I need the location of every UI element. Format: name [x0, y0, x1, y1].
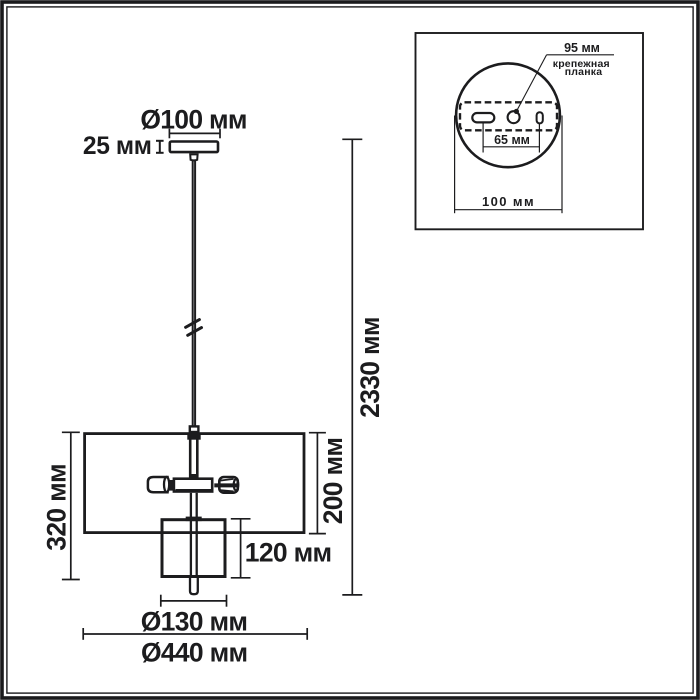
svg-text:2330 мм: 2330 мм: [355, 317, 385, 418]
svg-text:Ø130 мм: Ø130 мм: [141, 607, 248, 637]
svg-text:200 мм: 200 мм: [318, 438, 348, 525]
svg-text:25 мм: 25 мм: [83, 133, 152, 160]
svg-text:планка: планка: [565, 66, 603, 78]
svg-text:95 мм: 95 мм: [564, 41, 600, 55]
svg-text:Ø100 мм: Ø100 мм: [140, 104, 247, 134]
svg-text:120 мм: 120 мм: [245, 538, 332, 568]
svg-text:320 мм: 320 мм: [42, 464, 72, 551]
svg-text:Ø440 мм: Ø440 мм: [141, 637, 248, 667]
svg-text:65 мм: 65 мм: [494, 133, 530, 147]
svg-text:100 мм: 100 мм: [482, 194, 535, 209]
